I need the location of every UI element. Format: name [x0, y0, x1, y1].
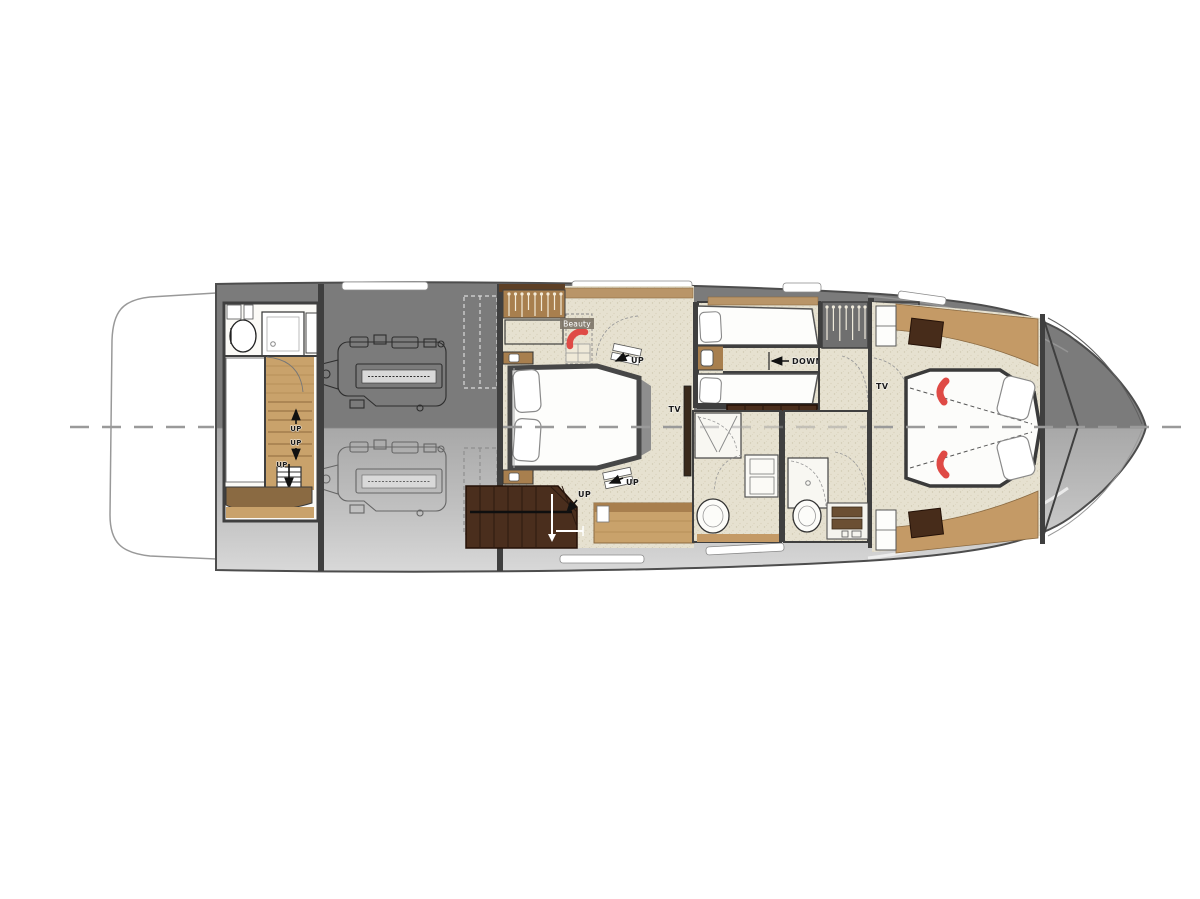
bulkhead-crew-engine [318, 284, 324, 571]
crew-up-label-3: UP [276, 461, 288, 469]
guest-head-trim [708, 297, 818, 305]
guest-bed-bottom [697, 374, 818, 406]
master-nightstand-bottom [503, 470, 533, 484]
vip-wardrobe-top [909, 318, 944, 348]
bow-bulkhead [1040, 314, 1045, 544]
master-pillow-bottom [513, 418, 542, 462]
crew-floor-strip [226, 507, 314, 518]
crew-cabin: UP UP UP [224, 303, 318, 521]
crew-toilet [230, 320, 256, 352]
bathroom-starboard-toilet [793, 500, 821, 532]
master-pillow-top [513, 369, 542, 413]
master-stairs-up-label: UP [578, 490, 591, 499]
master-bench [594, 503, 694, 543]
yacht-floor-plan-page: UP UP UP [0, 0, 1200, 899]
master-tv-label: TV [669, 405, 682, 414]
beauty-label: Beauty [563, 320, 591, 329]
master-head-trim [565, 288, 693, 298]
crew-shower [262, 312, 304, 356]
guest-bed-top [697, 306, 818, 345]
yacht-floor-plan-svg: UP UP UP [0, 0, 1200, 899]
guest-pillow-bottom [699, 377, 721, 403]
master-up-label-bottom: UP [626, 478, 639, 487]
down-label: DOWN [792, 357, 823, 366]
bathroom-port [693, 411, 781, 542]
bathroom-port-wood-strip [697, 534, 779, 542]
entry-floor [820, 348, 870, 414]
crew-berth [226, 358, 265, 482]
bathroom-starboard [784, 411, 868, 542]
hanging-locker-guest [822, 302, 868, 348]
bathroom-port-toilet [697, 499, 729, 533]
wall-guest-left [693, 302, 698, 408]
crew-cabinet [306, 313, 317, 353]
bathroom-port-shower [695, 413, 741, 458]
crew-up-label-2: UP [290, 439, 302, 447]
guest-nightstand [697, 346, 725, 370]
master-wardrobe [503, 290, 565, 344]
crew-up-label-1: UP [290, 425, 302, 433]
master-up-label-top: UP [631, 356, 644, 365]
vip-wardrobe-bottom [909, 508, 944, 538]
guest-corridor: DOWN [723, 345, 823, 374]
master-bed [510, 366, 639, 468]
master-nightstand-top [503, 352, 533, 364]
vip-tv-label: TV [876, 382, 889, 391]
guest-pillow-top [699, 311, 722, 342]
master-stairway [466, 486, 583, 548]
bathroom-starboard-vanity [827, 503, 868, 539]
